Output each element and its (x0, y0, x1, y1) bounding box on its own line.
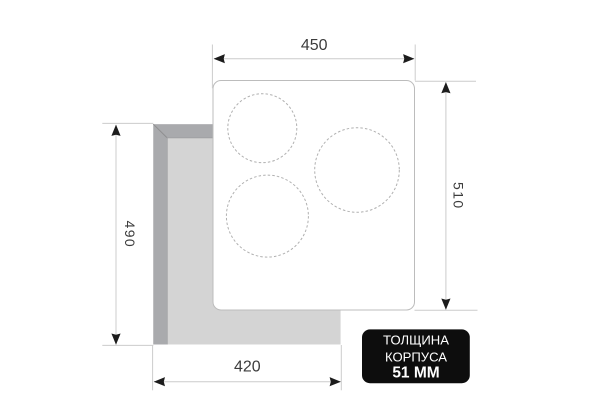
svg-text:51 ММ: 51 ММ (392, 365, 439, 382)
svg-text:510: 510 (451, 182, 467, 210)
svg-text:450: 450 (301, 37, 328, 54)
svg-text:КОРПУСА: КОРПУСА (385, 349, 447, 364)
svg-text:ТОЛЩИНА: ТОЛЩИНА (383, 333, 449, 348)
svg-text:420: 420 (234, 359, 261, 376)
svg-text:490: 490 (122, 221, 138, 249)
